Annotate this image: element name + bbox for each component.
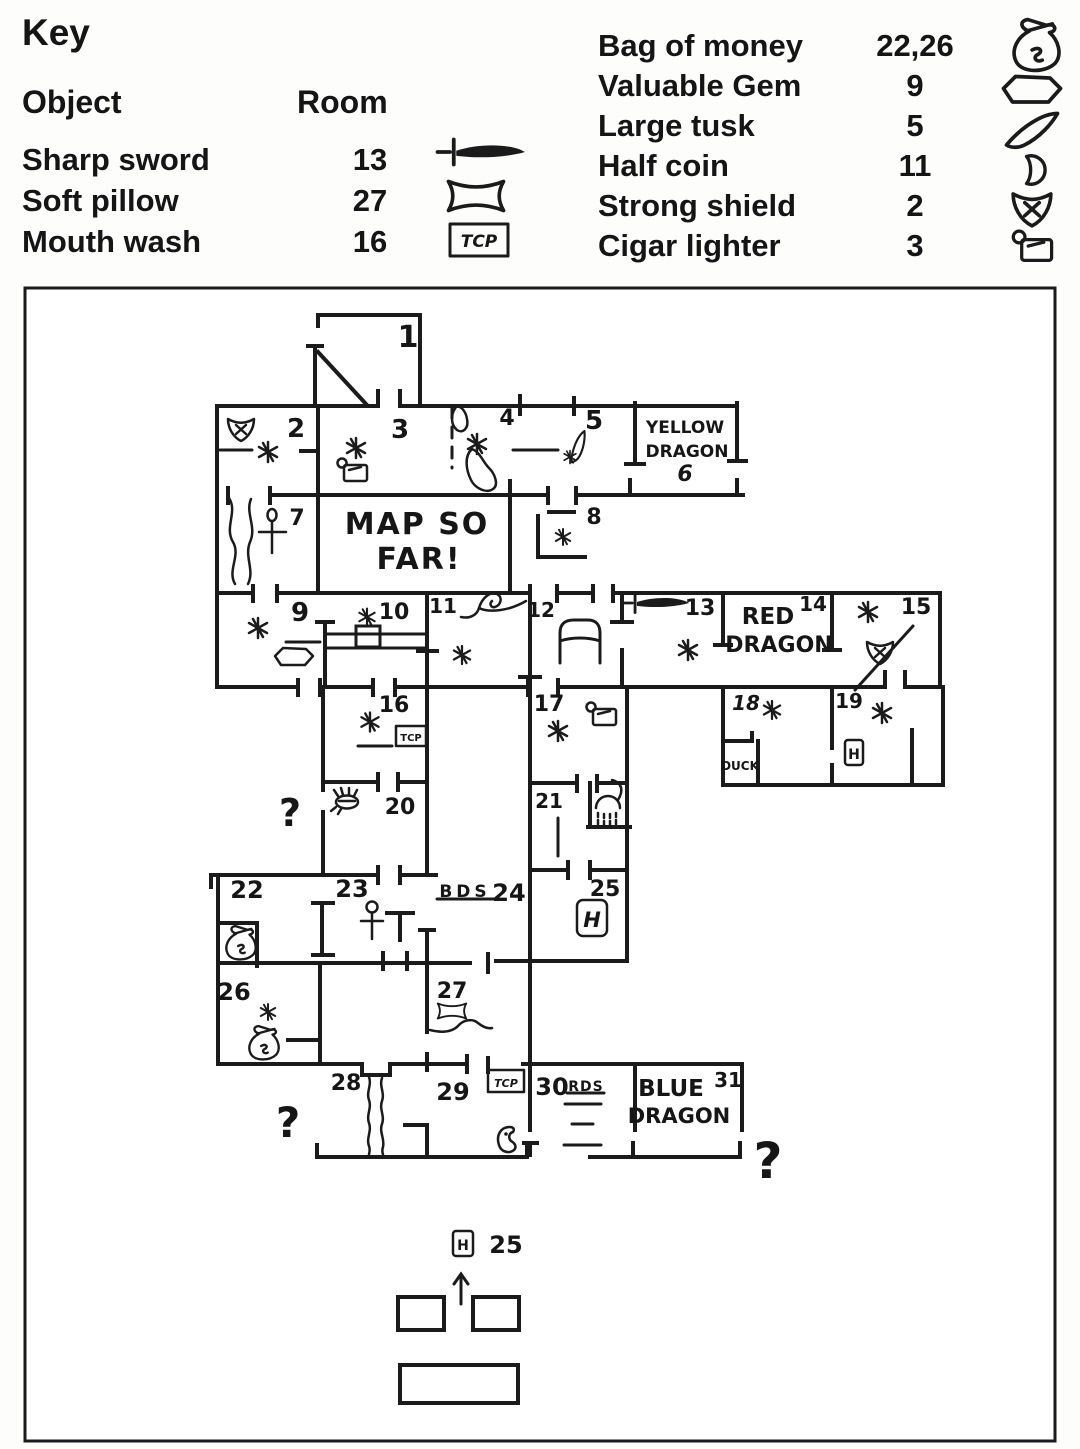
key-col-object: Object: [22, 84, 122, 121]
svg-text:H: H: [848, 747, 860, 763]
room-label-25: 25: [590, 877, 621, 902]
room-label-30: 30: [535, 1073, 568, 1101]
room-label-4: 4: [499, 406, 514, 431]
yellow-dragon-label: DRAGON: [646, 442, 729, 462]
rds-label: RDS: [568, 1079, 603, 1095]
room-label-19: 19: [835, 689, 863, 713]
red-dragon-label: RED: [742, 604, 795, 630]
room-label-11: 11: [429, 594, 457, 618]
blue-dragon-label: BLUE: [638, 1076, 704, 1102]
room-label-20: 20: [385, 795, 416, 820]
tcp-box-label: TCP: [461, 232, 498, 252]
room-label-15: 15: [901, 595, 932, 620]
key-item-room: 13: [315, 142, 425, 178]
room-label-22: 22: [230, 876, 263, 904]
question-mark: ?: [753, 1132, 782, 1190]
question-mark: ?: [276, 1098, 300, 1147]
room-label-18: 18: [732, 691, 760, 715]
scanned-page: Key Object Room Sharp sword Soft pillow …: [0, 0, 1080, 1449]
inset-room-label: 25: [489, 1231, 522, 1259]
key-item-room: 3: [860, 228, 970, 264]
map-title-line1: MAP SO: [345, 507, 490, 542]
room-label-9: 9: [291, 598, 309, 628]
room-label-17: 17: [534, 692, 565, 717]
money-bag-icon: [995, 16, 1070, 74]
pillow-icon: [430, 172, 520, 220]
key-col-room: Room: [297, 84, 388, 121]
key-item-room: 22,26: [860, 28, 970, 64]
gem-icon: [995, 70, 1070, 110]
room-label-13: 13: [685, 596, 716, 621]
dungeon-map: TCP TCP H H H: [20, 283, 1060, 1447]
key-item-label: Large tusk: [598, 108, 755, 144]
room-label-3: 3: [391, 415, 409, 445]
room-label-10: 10: [379, 600, 410, 625]
map-title-line2: FAR!: [376, 542, 461, 577]
key-item-label: Strong shield: [598, 188, 796, 224]
key-item-label: Mouth wash: [22, 224, 201, 260]
key-item-label: Sharp sword: [22, 142, 210, 178]
tcp-box-icon: TCP: [440, 216, 520, 262]
key-item-label: Soft pillow: [22, 183, 179, 219]
room-label-26: 26: [217, 978, 250, 1006]
key-item-room: 2: [860, 188, 970, 224]
room-label-31: 31: [714, 1068, 742, 1092]
key-item-label: Valuable Gem: [598, 68, 801, 104]
blue-dragon-label: DRAGON: [628, 1104, 731, 1128]
tusk-icon: [995, 108, 1070, 152]
question-mark: ?: [279, 791, 301, 835]
room-label-8: 8: [586, 505, 601, 530]
bds-label: BDS: [439, 882, 490, 902]
key-item-room: 11: [860, 148, 970, 184]
key-item-room: 9: [860, 68, 970, 104]
key-item-label: Cigar lighter: [598, 228, 781, 264]
lighter-icon: [1000, 228, 1070, 270]
key-item-label: Half coin: [598, 148, 729, 184]
room-label-16: 16: [379, 693, 410, 718]
room-label-24: 24: [492, 879, 525, 907]
room-label-2: 2: [287, 414, 305, 444]
red-dragon-label: DRAGON: [725, 633, 832, 658]
room-label-6: 6: [677, 462, 692, 487]
room-label-27: 27: [437, 979, 468, 1004]
key-item-room: 5: [860, 108, 970, 144]
yellow-dragon-label: YELLOW: [645, 418, 724, 438]
key-item-room: 16: [315, 224, 425, 260]
room-label-14: 14: [799, 592, 827, 616]
room-label-21: 21: [535, 789, 563, 813]
shield-icon: [995, 186, 1070, 232]
room-label-1: 1: [398, 320, 419, 355]
sword-icon: [425, 128, 535, 172]
room-label-28: 28: [331, 1071, 362, 1096]
key-item-label: Bag of money: [598, 28, 803, 64]
room-label-12: 12: [527, 598, 555, 622]
key-title: Key: [22, 12, 90, 54]
room-label-23: 23: [335, 875, 368, 903]
room-label-29: 29: [436, 1078, 469, 1106]
room-label-5: 5: [585, 406, 603, 436]
map-frame: [25, 288, 1055, 1441]
svg-text:TCP: TCP: [494, 1077, 518, 1090]
half-coin-icon: [1000, 150, 1070, 190]
room-label-7: 7: [289, 506, 304, 531]
duck-label: DUCK: [721, 759, 760, 773]
key-item-room: 27: [315, 183, 425, 219]
svg-text:H: H: [457, 1238, 469, 1254]
svg-text:H: H: [583, 908, 601, 932]
svg-text:TCP: TCP: [400, 733, 422, 744]
